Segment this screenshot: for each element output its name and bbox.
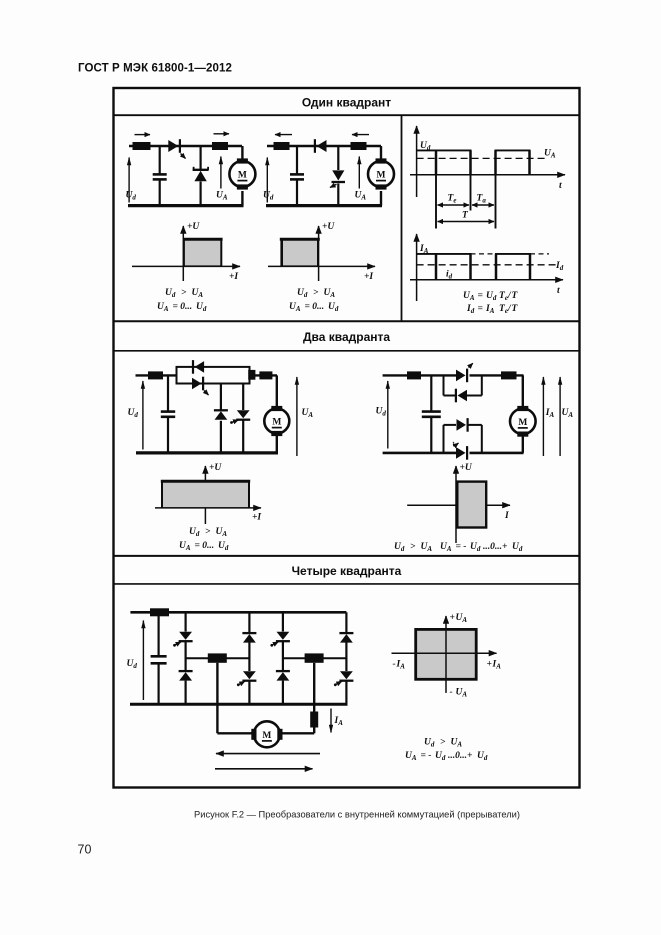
svg-text:>: >	[410, 542, 416, 552]
svg-text:...0...+: ...0...+	[448, 751, 472, 761]
svg-text:>: >	[205, 527, 211, 537]
svg-text:I: I	[504, 511, 509, 521]
svg-text:+: +	[450, 613, 455, 623]
svg-text:Рисунок F.2 — Преобразователи: Рисунок F.2 — Преобразователи с внутренн…	[194, 810, 520, 820]
svg-text:= 0...: = 0...	[195, 541, 215, 551]
svg-text:+U: +U	[187, 222, 200, 232]
svg-text:+U: +U	[209, 463, 222, 473]
svg-text:= -: = -	[456, 542, 467, 552]
svg-text:Два квадранта: Два квадранта	[303, 330, 390, 344]
svg-text:ГОСТ Р МЭК 61800-1—2012: ГОСТ Р МЭК 61800-1—2012	[78, 63, 232, 75]
svg-text:+I: +I	[252, 513, 261, 523]
svg-text:...0...+: ...0...+	[483, 542, 507, 552]
svg-text:=: =	[478, 291, 483, 301]
svg-text:M: M	[518, 418, 527, 428]
svg-text:Четыре квадранта: Четыре квадранта	[292, 564, 402, 578]
svg-text:+U: +U	[322, 222, 335, 232]
svg-text:M: M	[238, 171, 247, 181]
svg-text:+I: +I	[229, 272, 238, 282]
svg-text:>: >	[440, 738, 446, 748]
svg-text:70: 70	[78, 843, 92, 857]
svg-text:-: -	[393, 660, 396, 670]
svg-text:+U: +U	[460, 463, 473, 473]
svg-text:= 0...: = 0...	[173, 302, 193, 312]
svg-text:t: t	[453, 442, 455, 449]
svg-text:+: +	[487, 660, 492, 670]
svg-text:= 0...: = 0...	[305, 302, 325, 312]
svg-text:t: t	[557, 286, 560, 296]
svg-text:=: =	[478, 304, 483, 314]
svg-text:M: M	[272, 418, 281, 428]
svg-text:>: >	[313, 288, 319, 298]
svg-text:M: M	[377, 171, 386, 181]
svg-text:M: M	[262, 731, 271, 741]
svg-text:>: >	[181, 288, 187, 298]
svg-text:-: -	[450, 688, 453, 698]
svg-text:Один квадрант: Один квадрант	[302, 95, 391, 109]
svg-text:= -: = -	[421, 751, 432, 761]
svg-text:t: t	[559, 181, 562, 191]
svg-text:+I: +I	[364, 272, 373, 282]
